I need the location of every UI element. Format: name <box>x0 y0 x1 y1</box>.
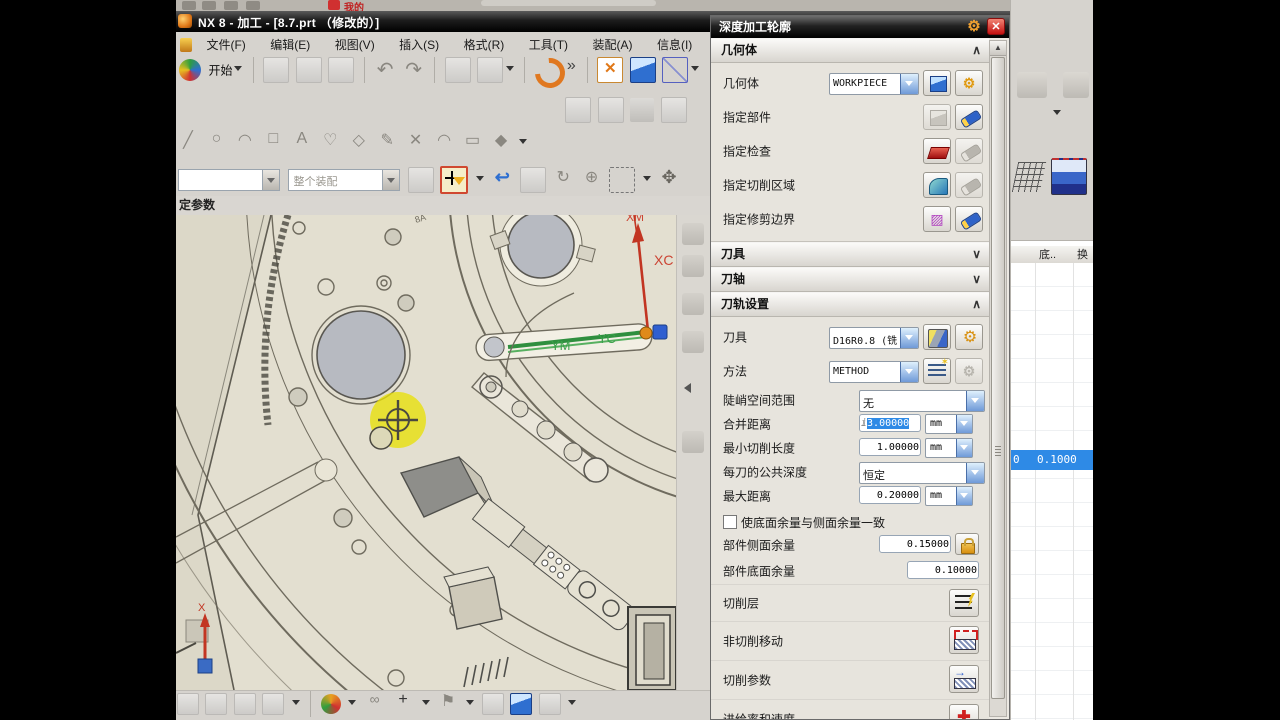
steep-value: 无 <box>860 391 966 411</box>
verify-icon[interactable] <box>510 693 532 715</box>
edit-geometry-button[interactable]: ⚙ <box>955 70 983 96</box>
generate-toolpath-icon[interactable] <box>321 694 341 714</box>
common-depth-dropdown-icon[interactable] <box>966 463 984 483</box>
scrollbar-thumb[interactable] <box>991 57 1005 699</box>
zlevel-profile-dialog: 深度加工轮廓 ⚙ ✕ 几何体 ∧ 几何体 WORKPIECE ⚙ <box>710 15 1010 720</box>
cut-levels-button[interactable] <box>949 589 979 617</box>
extrude-tool-icon[interactable]: ▭ <box>461 130 485 156</box>
window-title: NX 8 - 加工 - [8.7.prt （修改的）] <box>198 14 379 31</box>
cutting-params-label: 切削参数 <box>723 672 771 689</box>
new-method-button[interactable] <box>923 358 951 384</box>
geometry-dropdown-icon[interactable] <box>900 74 918 94</box>
machine-icon[interactable] <box>482 693 504 715</box>
dialog-scrollbar[interactable]: ▲ <box>989 40 1007 717</box>
tool-value: D16R0.8 (铣 <box>830 328 900 348</box>
machine-view-icon[interactable] <box>1017 72 1047 98</box>
x-axis-label: X <box>198 602 206 614</box>
edit-method-button[interactable]: ⚙ <box>955 358 983 384</box>
transform-dropdown-icon[interactable] <box>506 66 514 75</box>
graphics-window[interactable]: 8A YM YC <box>176 215 676 690</box>
max-dist-unit-combo[interactable]: mm <box>925 486 973 506</box>
new-geometry-button[interactable] <box>923 70 951 96</box>
selection-scope-value: 整个装配 <box>289 170 382 190</box>
display-part-button[interactable] <box>955 104 983 130</box>
menu-insert[interactable]: 插入(S) <box>389 32 449 57</box>
line-tool-icon[interactable]: ╱ <box>176 130 200 156</box>
merge-distance-field[interactable]: ⅈ3.00000 <box>859 414 921 432</box>
surface-tool-icon[interactable]: ◇ <box>347 130 371 156</box>
machine-view-dropdown-icon[interactable] <box>1053 110 1061 119</box>
max-dist-unit: mm <box>926 487 956 505</box>
rotate-wcs-icon[interactable]: ↻ <box>551 167 575 193</box>
feeds-button[interactable]: ✚ <box>949 704 979 719</box>
strip-icon[interactable] <box>682 223 704 245</box>
floor-stock-field[interactable]: 0.10000 <box>907 561 979 579</box>
method-value: METHOD <box>830 362 900 382</box>
section-geometry[interactable]: 几何体 ∧ <box>711 38 989 63</box>
nx-application-window: 我的 NX 8 - 加工 - [8.7.prt （修改的）] SIE 文件(F)… <box>176 0 1093 720</box>
display-cut-area-button[interactable] <box>955 172 983 198</box>
background-icon <box>202 1 216 10</box>
geometry-group: 几何体 WORKPIECE ⚙ 指定部件 指定检查 <box>711 63 989 242</box>
merge-unit: mm <box>926 415 956 433</box>
workpiece-tool-icon[interactable] <box>630 98 654 122</box>
method-label: 方法 <box>723 363 747 380</box>
min-cut-unit-dropdown-icon[interactable] <box>956 439 972 457</box>
nx-app-icon <box>178 14 192 28</box>
app-menu-icon <box>180 38 192 52</box>
paste-icon[interactable] <box>477 57 503 83</box>
fillet-tool-icon[interactable]: ◠ <box>432 130 456 156</box>
merge-unit-dropdown-icon[interactable] <box>956 415 972 433</box>
specify-part-label: 指定部件 <box>723 109 771 126</box>
rectangle-select-icon[interactable] <box>609 167 635 193</box>
bottom-icon-4[interactable] <box>262 693 284 715</box>
chevron-up-icon[interactable]: ∧ <box>972 293 981 315</box>
table-grid: 0 0.1000 <box>1011 263 1093 720</box>
select-dropdown-icon[interactable] <box>643 176 651 185</box>
wireframe-view-icon[interactable] <box>662 57 688 83</box>
menu-tools[interactable]: 工具(T) <box>519 32 578 57</box>
circle-tool-icon[interactable]: ○ <box>204 130 228 156</box>
xm-axis-label: XM <box>626 215 644 224</box>
common-depth-label: 每刀的公共深度 <box>723 464 807 481</box>
section-view-icon[interactable] <box>1051 158 1087 195</box>
generate-dropdown-icon[interactable] <box>348 700 356 709</box>
merge-label: 合并距离 <box>723 416 771 433</box>
ym-axis-label: YM <box>551 338 571 353</box>
bottom-icon-3[interactable] <box>234 693 256 715</box>
non-cutting-label: 非切削移动 <box>723 633 783 650</box>
plus-dropdown-icon[interactable] <box>422 700 430 709</box>
start-button[interactable]: 开始 <box>208 64 232 78</box>
selection-filter-combo[interactable] <box>178 169 280 191</box>
start-logo-icon[interactable] <box>179 59 201 81</box>
text-tool-icon[interactable]: A <box>290 130 314 156</box>
orient-wcs-icon[interactable]: ⊕ <box>580 167 604 193</box>
steep-dropdown-icon[interactable] <box>966 391 984 411</box>
side-stock-field[interactable]: 0.15000 <box>879 535 951 553</box>
new-tool-button[interactable] <box>923 324 951 350</box>
select-part-button[interactable] <box>923 104 951 130</box>
operation-navigator-table[interactable]: 底.. 换 0 0.1000 <box>1011 240 1093 720</box>
bottom-dropdown-icon[interactable] <box>292 700 300 709</box>
menu-format[interactable]: 格式(R) <box>454 32 515 57</box>
selection-scope-combo[interactable]: 整个装配 <box>288 169 400 191</box>
tool-dropdown-icon[interactable] <box>900 328 918 348</box>
chevron-down-icon[interactable]: ∨ <box>972 243 981 265</box>
background-titlebar-fragment <box>481 0 656 6</box>
cutting-params-button[interactable]: → <box>949 665 979 693</box>
rectangle-tool-icon[interactable]: □ <box>261 130 285 156</box>
background-window-text: 我的 <box>344 0 364 11</box>
section-path-settings[interactable]: 刀轨设置 ∧ <box>711 292 989 317</box>
feeds-label: 进给率和速度 <box>723 711 795 720</box>
xc-axis-label: XC <box>654 252 673 268</box>
bottom-toolbar: ∞ + ⚑ <box>176 690 710 720</box>
background-icon <box>246 1 260 10</box>
dialog-title-bar[interactable]: 深度加工轮廓 ⚙ ✕ <box>711 16 1009 38</box>
non-cutting-button[interactable] <box>949 626 979 654</box>
max-dist-label: 最大距离 <box>723 488 771 505</box>
swoosh-arrow-icon[interactable]: ↩ <box>490 167 514 193</box>
spline-tool-icon[interactable]: ♡ <box>318 130 342 156</box>
geometry-combo[interactable]: WORKPIECE <box>829 73 919 95</box>
program-view-icon[interactable] <box>1063 72 1089 98</box>
background-icon <box>182 1 196 10</box>
point-filter-icon-active[interactable] <box>440 166 468 194</box>
strip-icon[interactable] <box>682 331 704 353</box>
collapse-arrow-icon[interactable] <box>679 383 691 393</box>
max-dist-unit-dropdown-icon[interactable] <box>956 487 972 505</box>
right-toolbar-strip <box>676 215 711 690</box>
video-frame: 我的 NX 8 - 加工 - [8.7.prt （修改的）] SIE 文件(F)… <box>0 0 1280 720</box>
min-cut-unit-combo[interactable]: mm <box>925 438 973 458</box>
cut-levels-label: 切削层 <box>723 595 759 612</box>
selection-filter-value <box>179 170 262 190</box>
floor-stock-label: 部件底面余量 <box>723 563 795 580</box>
sphere-select-icon[interactable] <box>520 167 546 193</box>
snap-point-icon[interactable] <box>408 167 434 193</box>
display-check-button[interactable] <box>955 138 983 164</box>
trim-tool-icon[interactable]: ✕ <box>404 130 428 156</box>
arc-tool-icon[interactable]: ◠ <box>233 130 257 156</box>
new-file-icon[interactable] <box>263 57 289 83</box>
tool-label: 刀具 <box>723 329 747 346</box>
menu-edit[interactable]: 编辑(E) <box>260 32 320 57</box>
select-check-button[interactable] <box>923 138 951 164</box>
selected-operation-row[interactable]: 0 0.1000 <box>1011 450 1093 470</box>
sketch-tool-icon[interactable]: ✎ <box>375 130 399 156</box>
specify-check-label: 指定检查 <box>723 143 771 160</box>
side-stock-lock-button[interactable] <box>955 533 979 555</box>
section-tool-axis[interactable]: 刀轴 ∨ <box>711 267 989 292</box>
undo-icon[interactable]: ↶ <box>373 57 397 83</box>
background-icon <box>224 1 238 10</box>
strip-icon[interactable] <box>682 293 704 315</box>
model-view: 8A YM YC <box>176 215 676 690</box>
path-settings-group: 刀具 D16R0.8 (铣 ⚙ 方法 METHOD ⚙ <box>711 317 989 719</box>
background-red-icon <box>328 0 340 10</box>
menu-information[interactable]: 信息(I) <box>647 32 702 57</box>
stock-link-label: 使底面余量与侧面余量一致 <box>741 514 885 531</box>
strip-icon[interactable] <box>682 255 704 277</box>
transform-icon[interactable] <box>445 57 471 83</box>
geometry-label: 几何体 <box>723 75 759 92</box>
method-dropdown-icon[interactable] <box>900 362 918 382</box>
menu-view[interactable]: 视图(V) <box>325 32 385 57</box>
table-header: 底.. 换 <box>1011 246 1093 264</box>
flag-icon[interactable]: ⚑ <box>436 691 460 717</box>
merge-unit-combo[interactable]: mm <box>925 414 973 434</box>
yc-axis-label: YC <box>598 331 616 346</box>
mill-tool-icon[interactable] <box>598 97 624 123</box>
steep-combo[interactable]: 无 <box>859 390 985 412</box>
edit-tool-button[interactable]: ⚙ <box>955 324 983 350</box>
min-cut-field[interactable]: 1.00000 <box>859 438 921 456</box>
chain-link-icon[interactable]: ∞ <box>363 691 387 717</box>
menu-file[interactable]: 文件(F) <box>196 32 255 57</box>
fit-view-icon[interactable]: ✕ <box>597 57 623 83</box>
open-file-icon[interactable] <box>296 57 322 83</box>
geometry-value: WORKPIECE <box>830 74 900 94</box>
strip-icon[interactable] <box>682 431 704 453</box>
chevron-up-icon[interactable]: ∧ <box>972 39 981 61</box>
dialog-close-button[interactable]: ✕ <box>987 18 1005 35</box>
bottom-icon-2[interactable] <box>205 693 227 715</box>
point-filter-dropdown-icon[interactable] <box>476 176 484 185</box>
bottom-icon-1[interactable] <box>177 693 199 715</box>
right-panel: 底.. 换 0 0.1000 <box>1010 0 1093 720</box>
min-cut-unit: mm <box>926 439 956 457</box>
datum-tool-icon[interactable]: ◆ <box>489 130 513 156</box>
start-dropdown-icon[interactable] <box>234 66 242 75</box>
more-tools-button[interactable]: » <box>564 57 578 83</box>
select-trim-button[interactable]: ▨ <box>923 206 951 232</box>
specify-cut-area-label: 指定切削区域 <box>723 177 795 194</box>
view-dropdown-icon[interactable] <box>691 66 699 75</box>
stock-link-checkbox[interactable] <box>723 515 737 529</box>
select-cut-area-button[interactable] <box>923 172 951 198</box>
operation-navigator-icon[interactable] <box>661 97 687 123</box>
common-depth-value: 恒定 <box>860 463 966 483</box>
steep-label: 陡峭空间范围 <box>723 392 795 409</box>
refresh-icon[interactable] <box>535 58 559 82</box>
bottom-dropdown2-icon[interactable] <box>568 700 576 709</box>
specify-trim-label: 指定修剪边界 <box>723 211 795 228</box>
column-bottom-stock[interactable]: 底.. <box>1039 246 1056 262</box>
curve-toolbar-dropdown-icon[interactable] <box>519 139 527 148</box>
shaded-view-icon[interactable] <box>630 57 656 83</box>
selection-filter-dropdown-icon[interactable] <box>262 170 279 190</box>
pan-icon[interactable]: ✥ <box>657 167 681 193</box>
scroll-up-icon[interactable]: ▲ <box>990 41 1006 56</box>
chevron-down-icon[interactable]: ∨ <box>972 268 981 290</box>
dialog-title: 深度加工轮廓 <box>719 20 791 34</box>
max-dist-field[interactable]: 0.20000 <box>859 486 921 504</box>
lathe-tool-icon[interactable] <box>565 97 591 123</box>
save-icon[interactable] <box>328 57 354 83</box>
selection-scope-dropdown-icon[interactable] <box>382 170 399 190</box>
side-stock-label: 部件侧面余量 <box>723 537 795 554</box>
min-cut-label: 最小切削长度 <box>723 440 795 457</box>
grid-icon[interactable] <box>1012 162 1046 192</box>
flag-dropdown-icon[interactable] <box>466 700 474 709</box>
section-tool[interactable]: 刀具 ∨ <box>711 242 989 267</box>
dialog-gear-icon[interactable]: ⚙ <box>965 18 983 36</box>
column-tool-change[interactable]: 换 <box>1077 246 1088 262</box>
common-depth-combo[interactable]: 恒定 <box>859 462 985 484</box>
tool-combo[interactable]: D16R0.8 (铣 <box>829 327 919 349</box>
display-trim-button[interactable] <box>955 206 983 232</box>
postprocess-icon[interactable] <box>539 693 561 715</box>
menu-assembly[interactable]: 装配(A) <box>583 32 643 57</box>
plus-icon[interactable]: + <box>391 691 415 717</box>
background-window-strip: 我的 <box>176 0 1093 11</box>
dialog-body: 几何体 ∧ 几何体 WORKPIECE ⚙ 指定部件 <box>711 38 989 719</box>
method-combo[interactable]: METHOD <box>829 361 919 383</box>
redo-icon[interactable]: ↷ <box>402 57 426 83</box>
